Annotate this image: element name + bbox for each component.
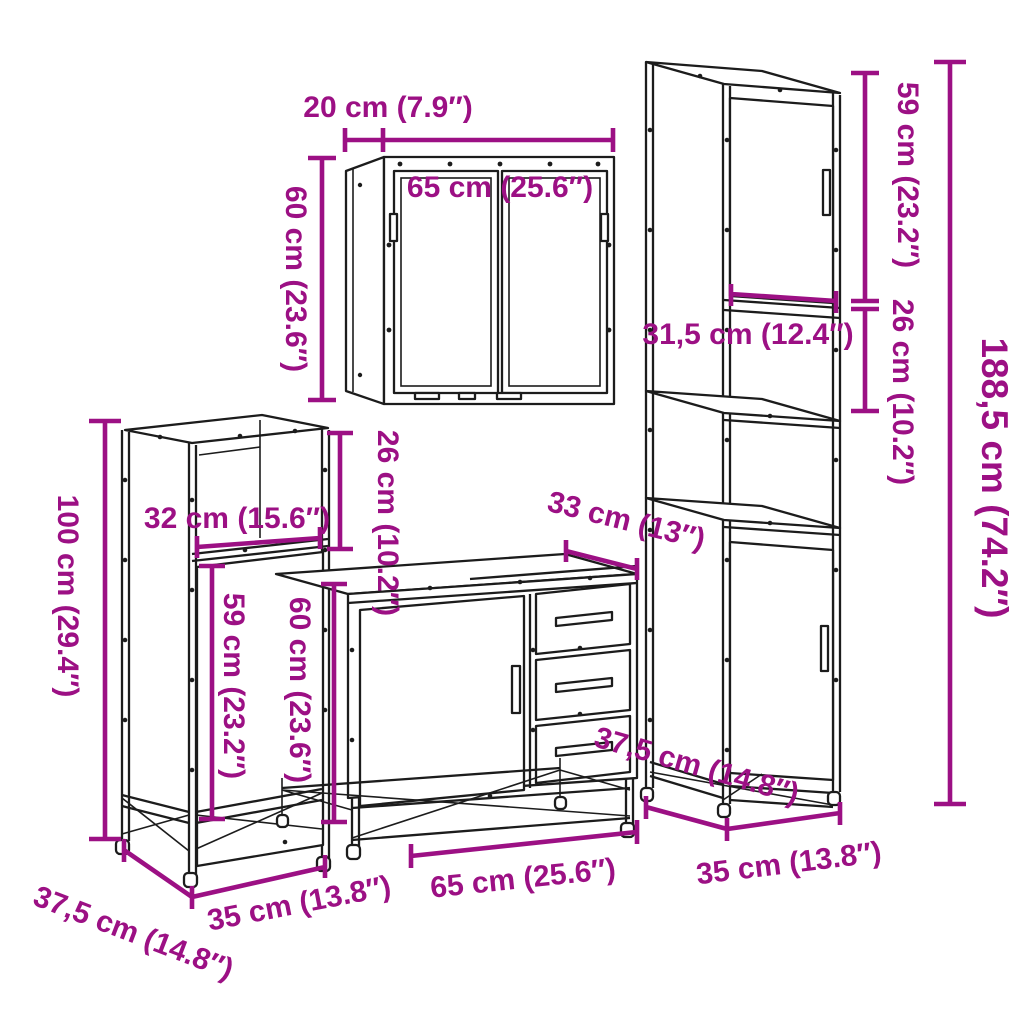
tall-top-door-handle [823,170,830,215]
dim-label-side-inner-width: 32 cm (15.6″) [144,502,330,535]
dim-label-tall-width: 35 cm (13.8″) [694,836,883,891]
dim-label-mirror-height: 60 cm (23.6″) [279,186,312,372]
mirror-door-right [502,171,607,393]
dim-label-side-height: 100 cm (29.4″) [51,495,84,698]
dim-label-side-width: 35 cm (13.8″) [205,870,394,938]
dim-label-tall-top-door-height: 59 cm (23.2″) [891,82,924,268]
mirror-handle-left [390,214,397,241]
dim-label-vanity-height: 60 cm (23.6″) [283,597,316,783]
dim-label-tall-total-height: 188,5 cm (74.2″) [974,337,1015,618]
dim-label-tall-inner-width: 31,5 cm (12.4″) [642,318,853,351]
furniture-dimension-diagram: 20 cm (7.9″) 65 cm (25.6″) 60 cm (23.6″)… [0,0,1024,1024]
dim-label-side-door-height: 59 cm (23.2″) [217,593,250,779]
diagram-canvas: 20 cm (7.9″) 65 cm (25.6″) 60 cm (23.6″)… [0,0,1024,1024]
dim-label-mirror-depth: 20 cm (7.9″) [303,91,472,124]
dim-label-vanity-depth: 33 cm (13″) [544,485,708,556]
dim-label-mirror-gap: 26 cm (10.2″) [371,430,404,616]
tall-bottom-door-handle [821,626,828,671]
mirror-handle-right [601,214,608,241]
tall-cabinet-drawing [641,62,840,817]
mirror-door-left [394,171,498,393]
tall-top-door [730,98,833,303]
dim-label-vanity-width: 65 cm (25.6″) [429,852,618,904]
dim-label-mirror-width: 65 cm (25.6″) [407,171,593,204]
tall-bottom-door [730,542,833,780]
vanity-door-handle [512,666,520,713]
dim-label-tall-shelf-gap: 26 cm (10.2″) [886,299,919,485]
